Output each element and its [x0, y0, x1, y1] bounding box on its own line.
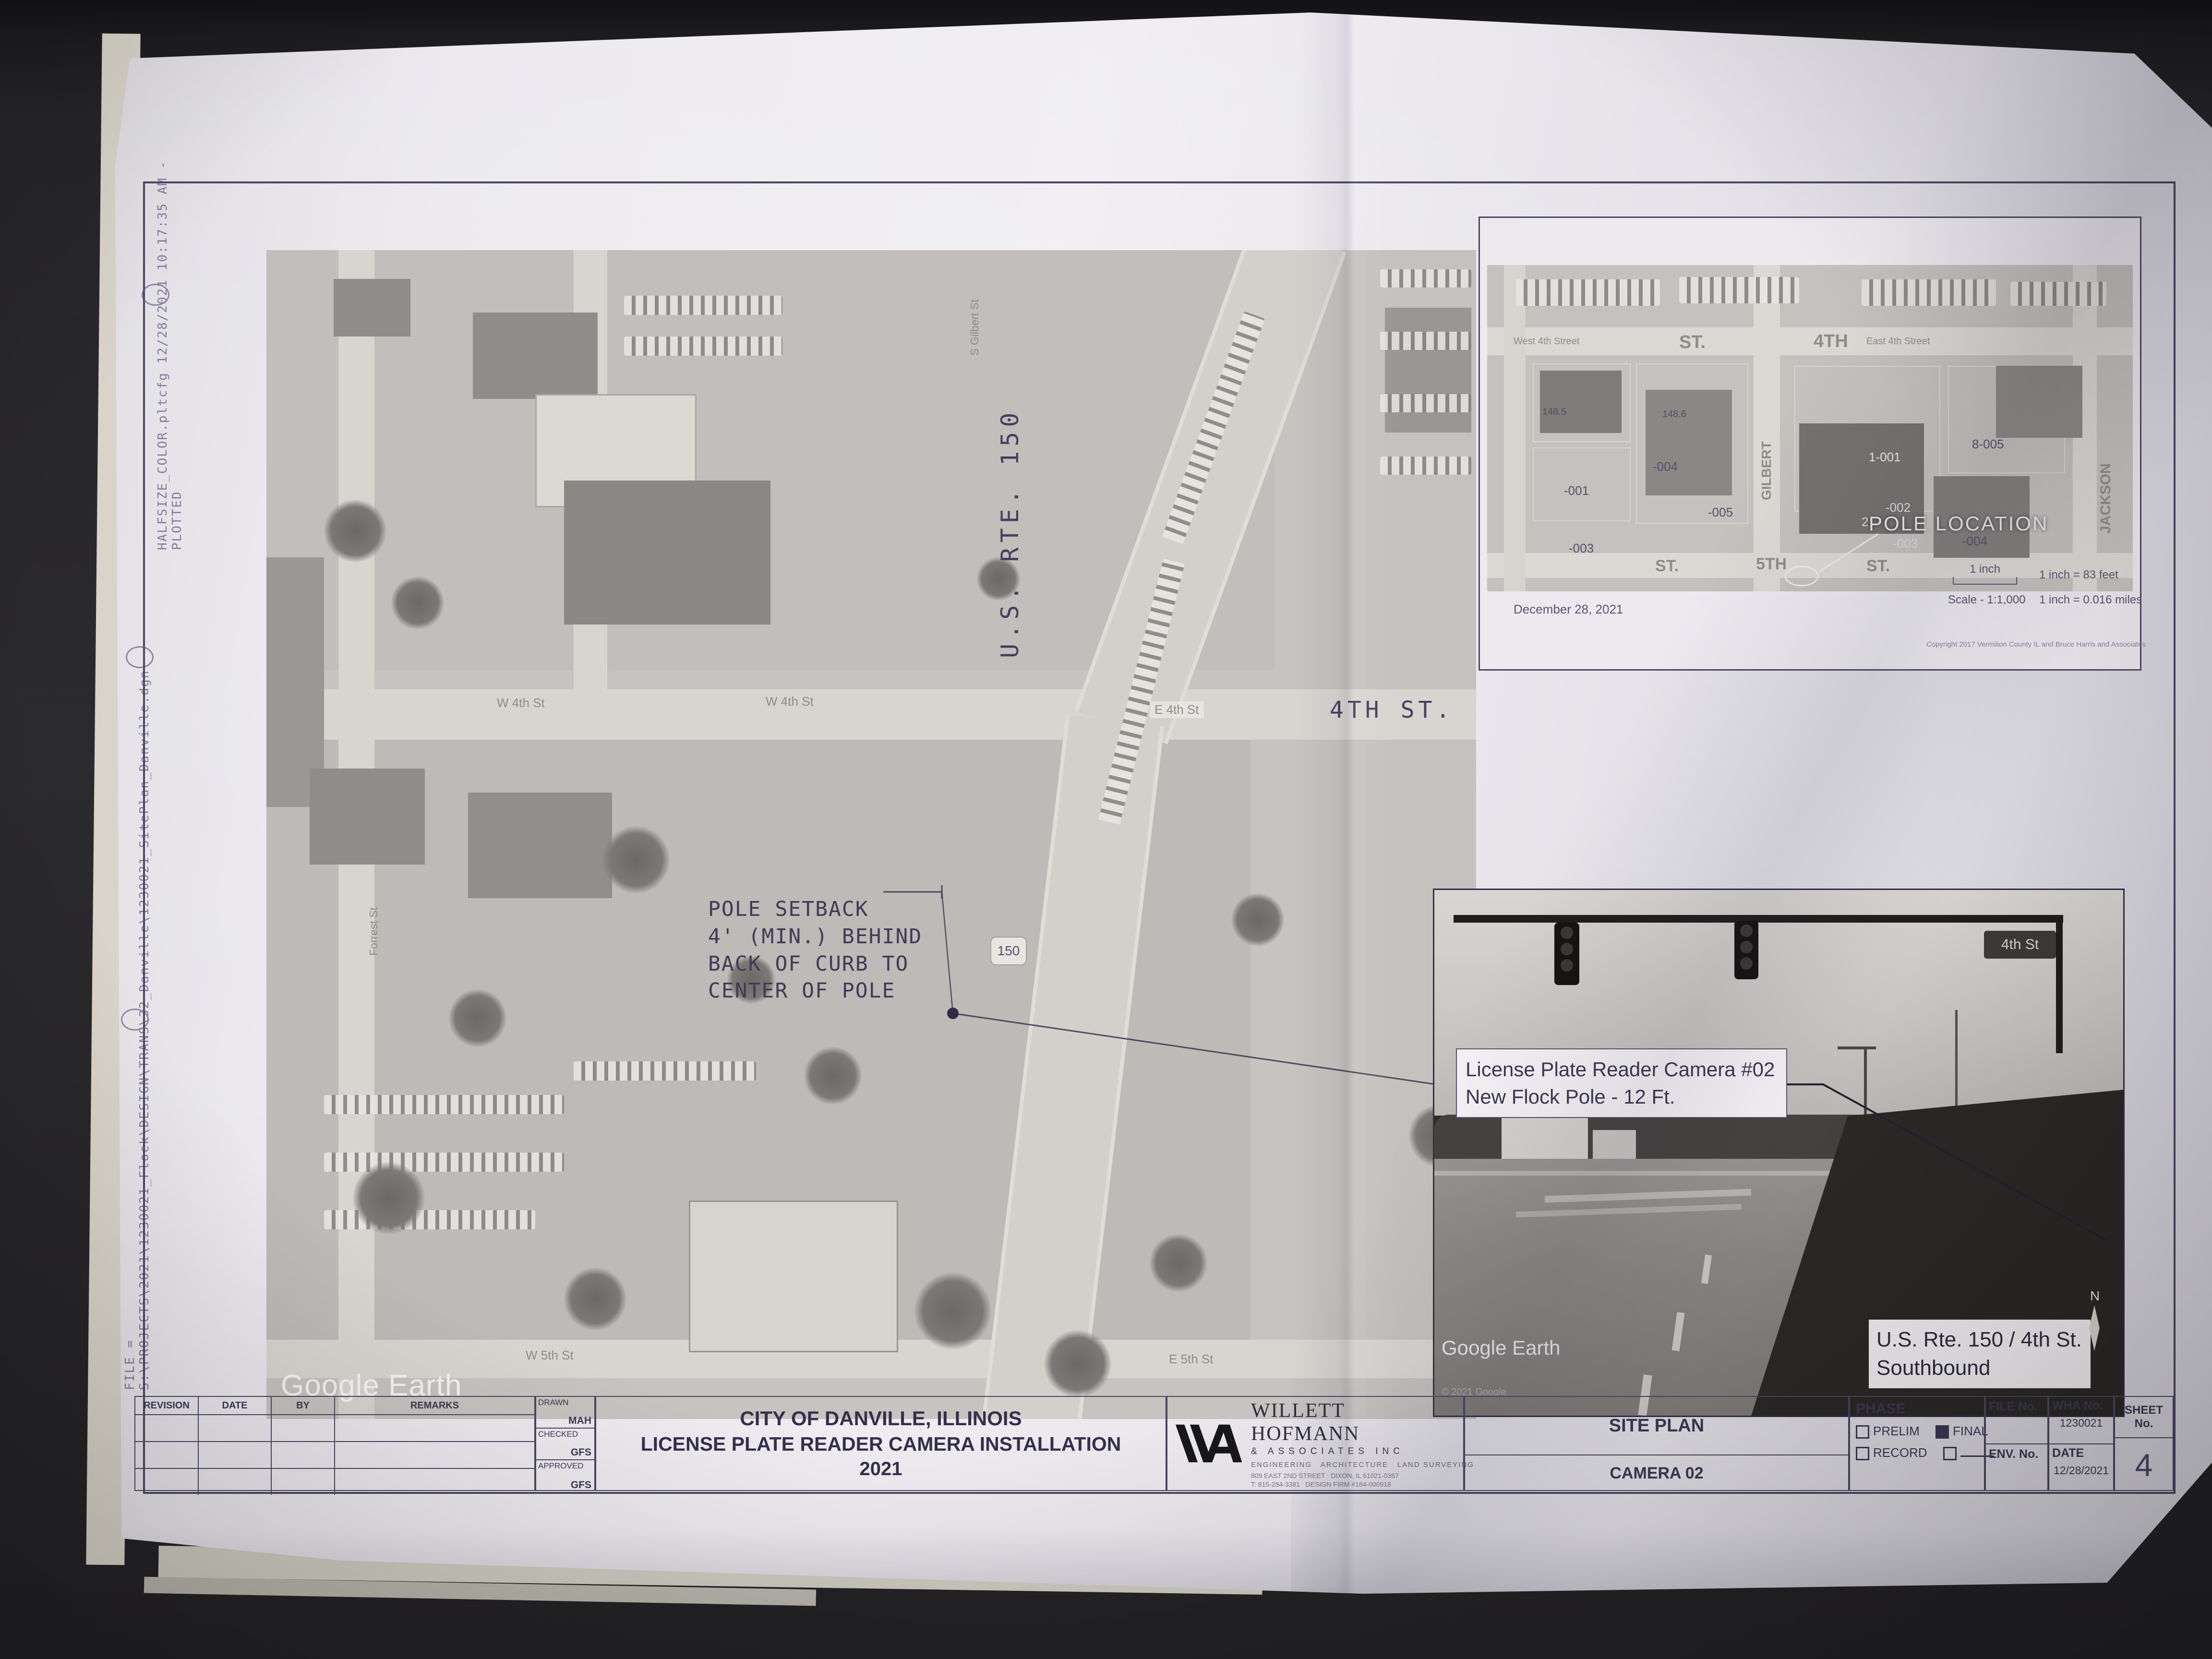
tree: [1150, 1234, 1207, 1292]
parking-row: [1380, 269, 1471, 288]
tree: [602, 826, 670, 893]
date-value: 12/28/2021: [2052, 1464, 2110, 1477]
north-label: N: [2090, 1288, 2100, 1304]
building: [334, 279, 410, 337]
willett-hofmann-logo-icon: [1172, 1417, 1244, 1470]
tree: [391, 577, 444, 629]
prelim-label: PRELIM: [1873, 1424, 1920, 1438]
date-cell: DATE 12/28/2021: [2049, 1444, 2113, 1492]
inset-date: December 28, 2021: [1514, 602, 1623, 617]
street-label-w4th: W 4th St: [497, 696, 545, 710]
sheet-no-label: SHEET No.: [2125, 1404, 2163, 1431]
rev-col-by: BY: [272, 1397, 335, 1414]
sheet-no-value: 4: [2135, 1447, 2153, 1483]
file-no-cell: FILE No.: [1986, 1397, 2047, 1444]
sheet-title-cell: SITE PLAN: [1465, 1397, 1848, 1455]
tree: [324, 500, 386, 562]
checked-cell: CHECKED GFS: [536, 1429, 594, 1460]
parking-row: [1380, 332, 1471, 350]
approved-value: GFS: [571, 1479, 591, 1491]
street-label-w5th: W 5th St: [526, 1348, 574, 1363]
tree: [1044, 1330, 1111, 1397]
sheet-no-label-cell: SHEET No.: [2115, 1397, 2173, 1438]
project-line2: LICENSE PLATE READER CAMERA INSTALLATION: [641, 1433, 1121, 1455]
env-no-label: ENV. No.: [1989, 1447, 2038, 1461]
firm-sub: & ASSOCIATES INC: [1251, 1446, 1458, 1457]
checked-value: GFS: [571, 1447, 591, 1458]
revision-row-empty: [135, 1442, 534, 1469]
wha-no-label: WHA No.: [2052, 1399, 2110, 1413]
drawn-label: DRAWN: [538, 1398, 569, 1407]
parking-row: [624, 296, 782, 315]
parking-row: [574, 1061, 756, 1081]
road-4th-st: [266, 689, 1476, 740]
building: [473, 313, 598, 399]
tree: [1231, 893, 1284, 946]
record-label: RECORD: [1873, 1445, 1927, 1460]
wha-no-cell: WHA No. 1230021: [2049, 1397, 2113, 1444]
camera-callout: License Plate Reader Camera #02 New Floc…: [1456, 1048, 1787, 1118]
firm-block: WILLETT HOFMANN & ASSOCIATES INC ENGINEE…: [1166, 1396, 1464, 1491]
tree: [353, 1162, 425, 1234]
drawn-value: MAH: [568, 1415, 591, 1427]
checked-label: CHECKED: [538, 1430, 578, 1439]
parking-row: [324, 1153, 564, 1172]
final-checkbox: [1935, 1425, 1949, 1439]
firm-name: WILLETT HOFMANN: [1251, 1399, 1458, 1445]
date-label: DATE: [2052, 1446, 2110, 1460]
scale-ratio: Scale - 1:1,000: [1948, 593, 2025, 607]
scale-bar: [1953, 577, 2017, 585]
pole-location-label: POLE LOCATION: [1869, 512, 2048, 535]
firm-addr1: 809 EAST 2ND STREET DIXON, IL 61021-0367: [1251, 1472, 1458, 1479]
phase-label: PHASE: [1856, 1401, 1978, 1417]
record-checkbox: [1856, 1447, 1869, 1460]
tree: [914, 1273, 991, 1349]
aerial-site-map: W 4th St W 4th St E 4th St 4TH ST. U.S. …: [266, 250, 1476, 1419]
building: [468, 793, 612, 898]
firm-addr2: T: 815-284-3381 DESIGN FIRM #184-000918: [1251, 1480, 1458, 1488]
building: [310, 769, 425, 865]
callout-line2: New Flock Pole - 12 Ft.: [1466, 1083, 1778, 1111]
project-line1: CITY OF DANVILLE, ILLINOIS: [740, 1407, 1022, 1430]
file-no-label: FILE No.: [1989, 1400, 2037, 1413]
desk-scene: HALFSIZE_COLOR.pltcfg 12/28/2021 10:17:3…: [0, 0, 2212, 1659]
location-line1: U.S. Rte. 150 / 4th St.: [1876, 1325, 2083, 1354]
revision-row-empty: [135, 1469, 534, 1495]
approved-cell: APPROVED GFS: [536, 1460, 594, 1492]
building: [564, 481, 770, 625]
tree: [564, 1268, 626, 1330]
revision-table: REVISION DATE BY REMARKS: [134, 1396, 535, 1491]
sheet-no-block: SHEET No. 4: [2114, 1396, 2174, 1491]
parking-row: [1380, 457, 1471, 475]
rev-col-revision: REVISION: [135, 1397, 199, 1414]
pole-location-inset-map: West 4th Street ST. 4TH East 4th Street …: [1479, 216, 2141, 671]
building: [1385, 308, 1471, 433]
project-line3: 2021: [860, 1458, 902, 1480]
sheet-title-block: SITE PLAN CAMERA 02: [1464, 1396, 1849, 1491]
sheet-subtitle-cell: CAMERA 02: [1465, 1455, 1848, 1491]
callout-line1: License Plate Reader Camera #02: [1466, 1056, 1778, 1083]
scale-feet: 1 inch = 83 feet: [2039, 568, 2118, 582]
pole-location-leader: [1487, 265, 2133, 591]
route-150-shield-number: 150: [998, 943, 1020, 959]
drawn-cell: DRAWN MAH: [536, 1397, 594, 1429]
parcel-map: West 4th Street ST. 4TH East 4th Street …: [1487, 265, 2133, 591]
scale-miles: 1 inch = 0.016 miles: [2039, 593, 2142, 607]
rev-col-date: DATE: [199, 1397, 272, 1414]
phase-block: PHASE PRELIM FINAL RECORD: [1849, 1396, 1985, 1491]
street-label-4th-st: 4TH ST.: [1330, 697, 1454, 723]
street-label-forrest: Forrest St: [367, 874, 380, 956]
prelim-checkbox: [1856, 1425, 1869, 1439]
sheet-no-value-cell: 4: [2115, 1438, 2173, 1492]
google-earth-watermark: Google Earth: [1442, 1336, 1561, 1359]
pole-setback-note: POLE SETBACK 4' (MIN.) BEHIND BACK OF CU…: [708, 896, 922, 1005]
location-line2: Southbound: [1876, 1354, 2083, 1382]
env-no-cell: ENV. No.: [1986, 1444, 2047, 1492]
street-view-photo: 4th St License Plate Reader C: [1433, 889, 2125, 1417]
credits-block: DRAWN MAH CHECKED GFS APPROVED GFS: [535, 1396, 595, 1491]
parking-row: [1380, 394, 1471, 412]
route-150-label: U.S. RTE. 150: [996, 322, 1024, 658]
wha-date-block: WHA No. 1230021 DATE 12/28/2021: [2048, 1396, 2114, 1491]
route-150-shield: 150: [990, 937, 1027, 965]
rev-col-remarks: REMARKS: [335, 1397, 534, 1414]
tree: [449, 989, 506, 1047]
project-title-block: CITY OF DANVILLE, ILLINOIS LICENSE PLATE…: [595, 1396, 1166, 1491]
final-label: FINAL: [1953, 1424, 1988, 1438]
tree: [804, 1047, 862, 1105]
street-label-w4th: W 4th St: [766, 694, 814, 709]
parking-row: [624, 337, 782, 356]
parking-row: [324, 1095, 564, 1114]
location-label: U.S. Rte. 150 / 4th St. Southbound: [1869, 1320, 2091, 1388]
inset-copyright: Copyright 2017 Vermilion County IL and B…: [1926, 640, 2146, 649]
other-checkbox: [1943, 1447, 1957, 1460]
title-block: REVISION DATE BY REMARKS DRAWN: [134, 1396, 2174, 1491]
street-label-gilbert: S Gilbert St: [968, 269, 981, 356]
revision-row-empty: [135, 1415, 534, 1442]
file-env-block: FILE No. ENV. No.: [1985, 1396, 2048, 1491]
street-label-e5th: E 5th St: [1169, 1352, 1214, 1367]
sheet-title-text: SITE PLAN: [1609, 1416, 1704, 1436]
firm-tagline: ENGINEERING ARCHITECTURE LAND SURVEYING: [1251, 1461, 1458, 1469]
sheet-subtitle-text: CAMERA 02: [1610, 1464, 1703, 1483]
drawing-sheet: HALFSIZE_COLOR.pltcfg 12/28/2021 10:17:3…: [115, 12, 2212, 1594]
street-label-e4th: E 4th St: [1150, 701, 1204, 718]
approved-label: APPROVED: [538, 1461, 583, 1471]
wha-no-value: 1230021: [2052, 1417, 2110, 1430]
scale-bar-label: 1 inch: [1970, 563, 2000, 576]
building-white-roof: [689, 1201, 898, 1352]
